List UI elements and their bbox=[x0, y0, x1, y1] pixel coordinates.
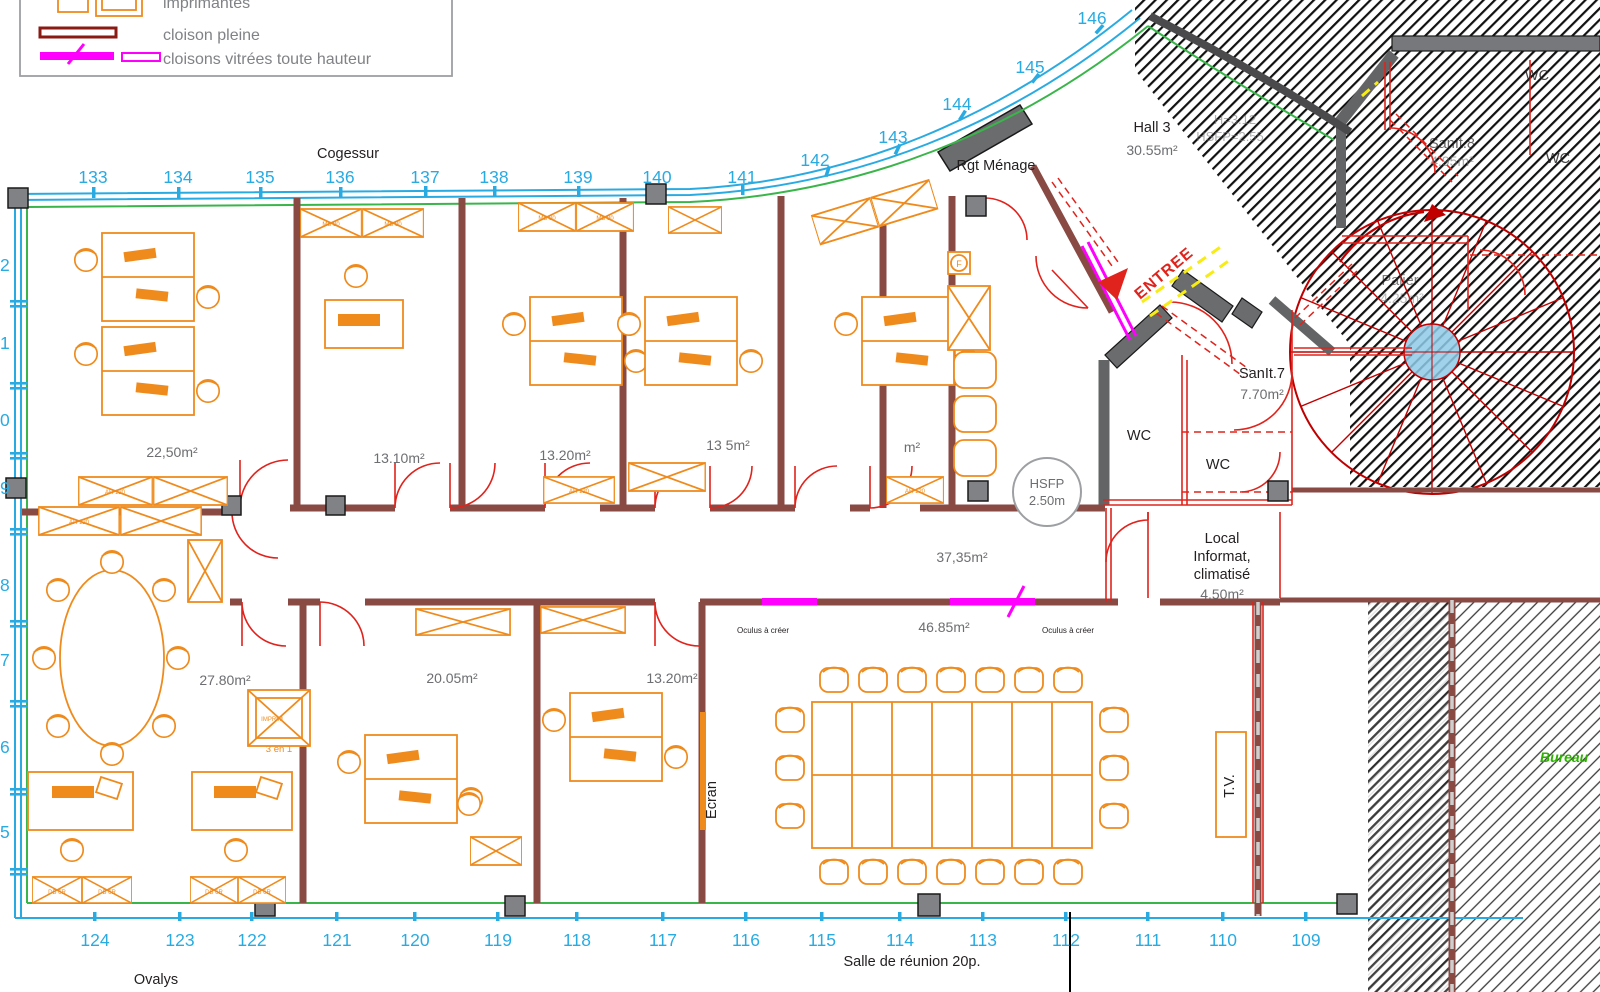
grid-number: 116 bbox=[732, 930, 760, 950]
grid-number: 136 bbox=[325, 167, 354, 187]
room-area: 30.55m² bbox=[1126, 142, 1178, 158]
tv-label: T.V. bbox=[1222, 774, 1238, 798]
grid-number: 145 bbox=[1015, 57, 1044, 77]
room-area: 37,35m² bbox=[936, 549, 988, 565]
cabinet-tag: AH 120 bbox=[905, 489, 926, 495]
grid-number: 146 bbox=[1077, 8, 1106, 28]
grid-number: 143 bbox=[878, 127, 907, 147]
cabinet-tag: DB 6R bbox=[48, 890, 66, 896]
room-area: 20.05m² bbox=[426, 670, 478, 686]
building-title-bottom: Ovalys bbox=[134, 972, 178, 988]
legend-label: cloison pleine bbox=[163, 27, 260, 44]
room-area: 13 5m² bbox=[706, 437, 750, 453]
grid-number-partial: 1 bbox=[0, 333, 10, 353]
grid-number: 140 bbox=[642, 167, 671, 187]
legend-label: cloisons vitrées toute hauteur bbox=[163, 51, 372, 68]
room-area: 22,50m² bbox=[146, 444, 198, 460]
furniture bbox=[28, 180, 1246, 903]
room-name: WC bbox=[1525, 68, 1549, 84]
adjacent-room-label: Bureau bbox=[1540, 749, 1589, 765]
cabinet-tag: DB 6R bbox=[253, 890, 271, 896]
grid-number: 111 bbox=[1135, 930, 1162, 950]
screen-label: Ecran bbox=[704, 781, 720, 819]
room-area: 13.10m² bbox=[373, 450, 425, 466]
room-name: Local bbox=[1205, 531, 1240, 547]
cabinet-tag: MB 80 bbox=[538, 216, 556, 222]
hsfp-stamp bbox=[1013, 458, 1081, 526]
room-name: SanIt.8 bbox=[1429, 136, 1475, 152]
grid-number: 141 bbox=[727, 167, 756, 187]
printer-tag: IMPRIM bbox=[261, 717, 283, 723]
grid-number-partial: 7 bbox=[0, 650, 10, 670]
electrical-box-label: F bbox=[956, 259, 962, 269]
hsfp-label: HSFP bbox=[1030, 476, 1065, 491]
grid-number: 134 bbox=[163, 167, 192, 187]
room-area: 46.85m² bbox=[918, 619, 970, 635]
grid-number: 142 bbox=[800, 150, 829, 170]
cabinet-tag: DB 6R bbox=[98, 890, 116, 896]
grid-number: 122 bbox=[237, 930, 266, 950]
grid-number: 144 bbox=[942, 94, 971, 114]
room-name: Palier bbox=[1381, 273, 1418, 289]
cabinet-tag: AH 120 bbox=[569, 489, 590, 495]
grid-number: 109 bbox=[1291, 930, 1320, 950]
hsfp-value: 2.50m bbox=[1029, 493, 1065, 508]
grid-number: 121 bbox=[322, 930, 351, 950]
grid-number: 123 bbox=[165, 930, 194, 950]
printer-icon bbox=[58, 0, 88, 12]
cabinet-tag: DB 6R bbox=[205, 890, 223, 896]
printer-note: 3 en 1 bbox=[266, 744, 292, 755]
room-area: 7.70m² bbox=[1240, 386, 1284, 402]
grid-number-partial: 8 bbox=[0, 575, 10, 595]
room-area: 27.80m² bbox=[199, 672, 251, 688]
cabinet-tag: MB 80 bbox=[596, 216, 614, 222]
room-area: m² bbox=[904, 439, 921, 455]
room-name: WC bbox=[1127, 428, 1151, 444]
grid-number: 118 bbox=[563, 930, 591, 950]
legend-label: imprimantes bbox=[163, 0, 250, 12]
grid-number: 117 bbox=[649, 930, 677, 950]
workstation bbox=[75, 327, 219, 415]
grid-number: 115 bbox=[808, 930, 836, 950]
legend-solid-wall-icon bbox=[40, 28, 116, 37]
building-title-top: Cogessur bbox=[317, 146, 379, 162]
room-name: Rgt Ménage bbox=[957, 158, 1036, 174]
room-area: 13.20m² bbox=[539, 447, 591, 463]
floor-plan: imprimantes cloison pleine cloisons vitr… bbox=[0, 0, 1600, 992]
meeting-room-title: Salle de réunion 20p. bbox=[843, 954, 980, 970]
grid-number: 110 bbox=[1209, 930, 1237, 950]
cabinet-tag: AH 120 bbox=[105, 490, 126, 496]
grid-number-partial: 0 bbox=[0, 410, 10, 430]
legend: imprimantes cloison pleine cloisons vitr… bbox=[20, 0, 452, 76]
grid-number-partial: 9 bbox=[0, 478, 10, 498]
room-area: 4.25m² bbox=[1380, 290, 1424, 306]
room-area: 4.50m² bbox=[1200, 586, 1244, 602]
cabinet-tag: AH 120 bbox=[69, 520, 90, 526]
grid-number: 138 bbox=[479, 167, 508, 187]
grid-number: 124 bbox=[80, 930, 109, 950]
workstation bbox=[543, 693, 687, 781]
room-name: Hall 3 bbox=[1133, 120, 1170, 136]
cabinet-tag: MB 80 bbox=[384, 222, 402, 228]
room-name: WC bbox=[1546, 151, 1570, 167]
room-name: Informat, bbox=[1193, 549, 1250, 565]
grid-number: 139 bbox=[563, 167, 592, 187]
grid-number-partial: 2 bbox=[0, 255, 10, 275]
oculus-note: Oculus à créer bbox=[1042, 626, 1094, 635]
grid-number: 119 bbox=[484, 930, 512, 950]
oculus-note: Oculus à créer bbox=[737, 626, 789, 635]
grid-number-partial: 5 bbox=[0, 822, 10, 842]
hatch-note: H=3.12 bbox=[1214, 112, 1256, 127]
workstation bbox=[75, 233, 219, 321]
grid-number: 133 bbox=[78, 167, 107, 187]
grid-number: 113 bbox=[969, 930, 997, 950]
room-name: WC bbox=[1206, 457, 1230, 473]
room-name: SanIt.7 bbox=[1239, 366, 1285, 382]
room-name: climatisé bbox=[1194, 567, 1250, 583]
grid-number: 135 bbox=[245, 167, 274, 187]
grid-number: 114 bbox=[886, 930, 914, 950]
room-area: 13.20m² bbox=[646, 670, 698, 686]
hatch-note: HSFP=2.55 bbox=[1196, 129, 1264, 144]
grid-number: 137 bbox=[410, 167, 439, 187]
grid-number: 120 bbox=[400, 930, 429, 950]
grid-number-partial: 6 bbox=[0, 737, 10, 757]
room-area: 4.95m² bbox=[1430, 153, 1474, 169]
grid-number: 112 bbox=[1052, 930, 1080, 950]
cabinet-tag: MB 80 bbox=[322, 222, 340, 228]
